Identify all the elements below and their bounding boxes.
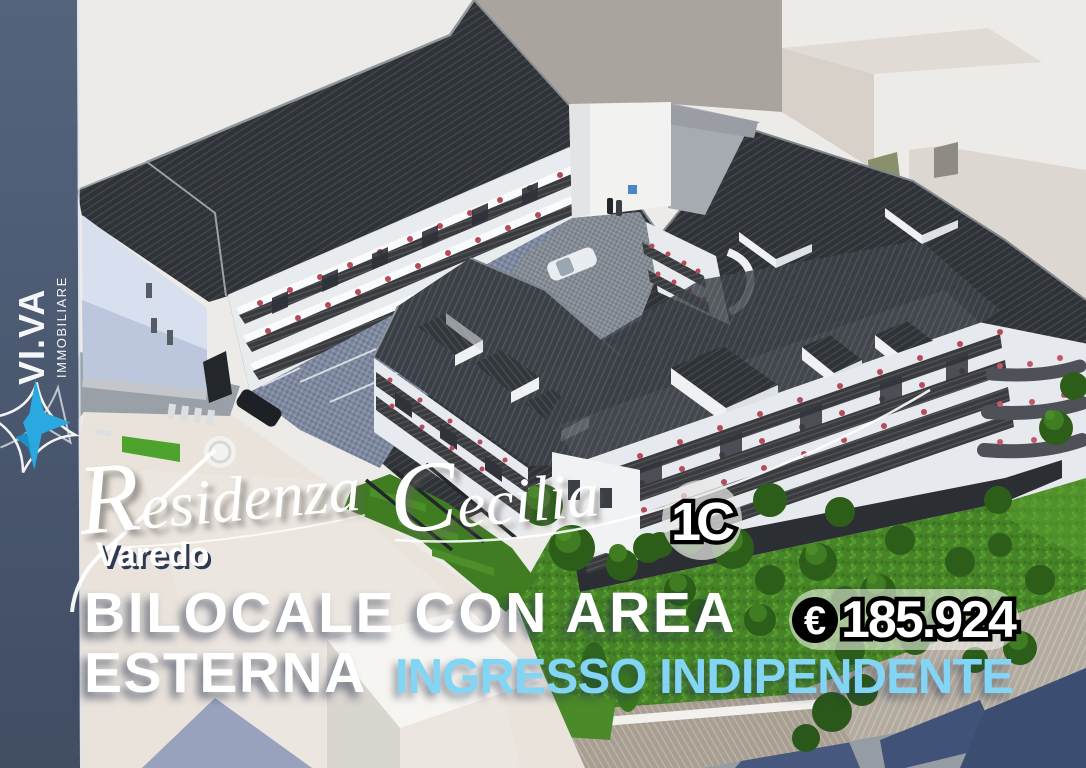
- svg-text:€: €: [804, 599, 826, 643]
- svg-text:VI.VA: VI.VA: [11, 289, 52, 385]
- svg-text:1C: 1C: [671, 492, 734, 552]
- svg-text:IMMOBILIARE: IMMOBILIARE: [54, 276, 69, 378]
- svg-text:185.924: 185.924: [841, 592, 1017, 649]
